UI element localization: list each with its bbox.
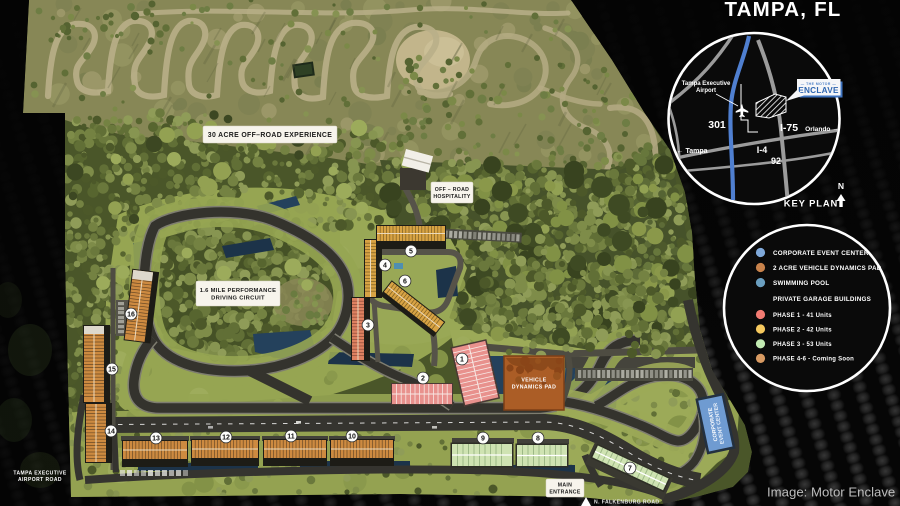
svg-text:6: 6 [403,279,407,286]
svg-text:← Tampa: ← Tampa [677,148,708,155]
svg-text:OFF – ROAD: OFF – ROAD [435,187,469,193]
svg-text:13: 13 [152,436,160,443]
svg-text:10: 10 [348,434,356,441]
svg-text:3: 3 [366,323,370,330]
svg-text:PHASE 4-6 - Coming Soon: PHASE 4-6 - Coming Soon [773,357,854,363]
svg-text:1.6 MILE PERFORMANCE: 1.6 MILE PERFORMANCE [200,288,277,294]
svg-text:4: 4 [383,263,387,270]
svg-text:I-4: I-4 [757,145,768,155]
svg-text:PRIVATE GARAGE BUILDINGS: PRIVATE GARAGE BUILDINGS [773,296,871,303]
svg-text:92: 92 [771,156,781,166]
svg-text:2: 2 [421,376,425,383]
svg-text:16: 16 [127,312,135,319]
svg-text:TAMPA EXECUTIVE: TAMPA EXECUTIVE [13,471,67,477]
svg-text:8: 8 [536,436,540,443]
svg-text:12: 12 [222,435,230,442]
svg-text:Orlando →: Orlando → [805,126,839,133]
svg-text:PHASE 2 - 42 Units: PHASE 2 - 42 Units [773,327,832,333]
svg-text:PHASE 1 - 41 Units: PHASE 1 - 41 Units [773,313,832,319]
svg-text:PHASE 3 - 53 Units: PHASE 3 - 53 Units [773,342,832,348]
svg-text:Image: Motor Enclave: Image: Motor Enclave [767,485,895,500]
svg-text:ENTRANCE: ENTRANCE [549,489,580,495]
svg-text:AIRPORT ROAD: AIRPORT ROAD [18,477,62,483]
svg-text:N. FALKENBURG ROAD: N. FALKENBURG ROAD [594,500,660,506]
svg-text:HOSPITALITY: HOSPITALITY [433,194,470,200]
svg-text:30 ACRE OFF–ROAD EXPERIENCE: 30 ACRE OFF–ROAD EXPERIENCE [208,132,332,139]
svg-text:TAMPA, FL: TAMPA, FL [724,0,841,21]
svg-text:VEHICLE: VEHICLE [521,378,546,384]
svg-text:MAIN: MAIN [558,483,572,489]
svg-text:ENCLAVE: ENCLAVE [798,86,839,95]
svg-text:15: 15 [108,367,116,374]
svg-text:9: 9 [481,436,485,443]
svg-text:301: 301 [708,119,726,131]
svg-text:7: 7 [628,466,632,473]
svg-text:2 ACRE VEHICLE DYNAMICS PAD: 2 ACRE VEHICLE DYNAMICS PAD [773,265,882,272]
svg-text:DYNAMICS PAD: DYNAMICS PAD [512,385,556,391]
svg-text:11: 11 [287,434,295,441]
svg-text:N: N [838,181,844,191]
svg-text:5: 5 [409,249,413,256]
svg-text:14: 14 [107,429,115,436]
svg-text:Tampa Executive: Tampa Executive [682,81,731,87]
svg-text:KEY PLAN: KEY PLAN [784,198,838,209]
svg-text:I-75: I-75 [780,122,798,134]
svg-text:SWIMMING POOL: SWIMMING POOL [773,280,829,287]
svg-text:DRIVING CIRCUIT: DRIVING CIRCUIT [211,295,265,301]
svg-text:1: 1 [460,357,464,364]
svg-text:CORPORATE EVENT CENTER: CORPORATE EVENT CENTER [773,250,869,257]
svg-text:Airport: Airport [696,88,716,94]
